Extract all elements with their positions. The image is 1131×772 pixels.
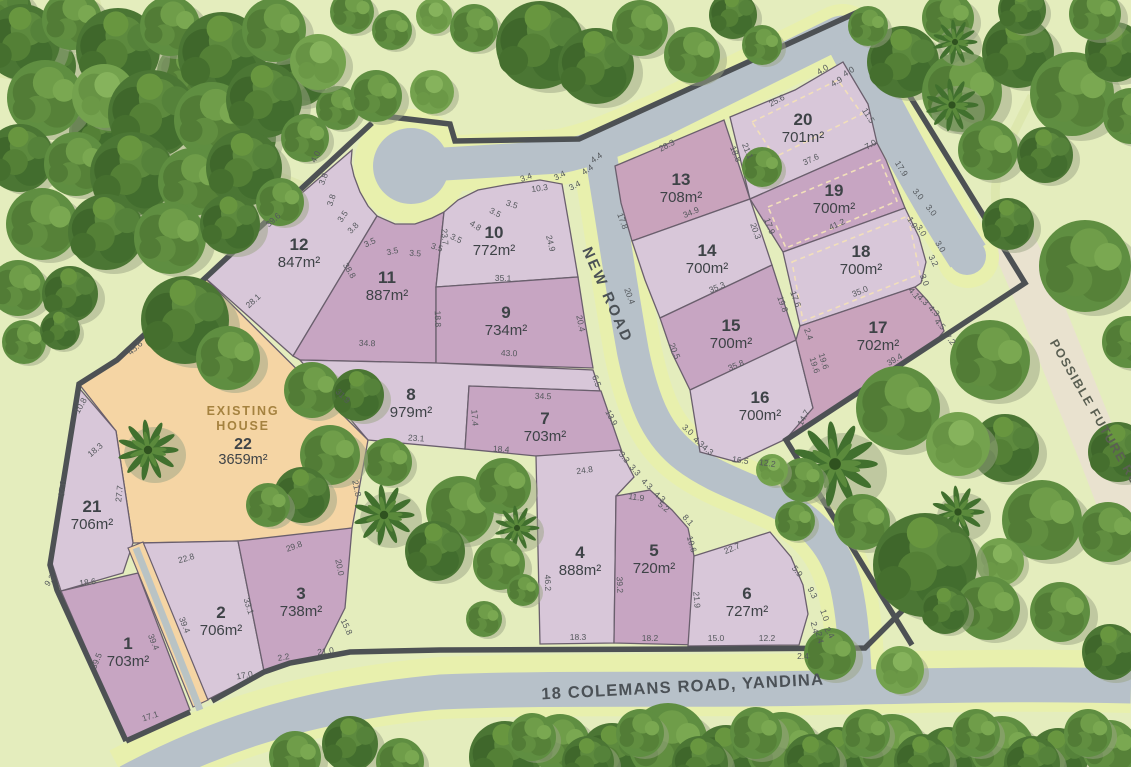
svg-text:2.2: 2.2 xyxy=(277,651,291,663)
svg-text:EXISTING: EXISTING xyxy=(207,404,280,418)
svg-text:738m²: 738m² xyxy=(280,603,323,620)
svg-text:17: 17 xyxy=(869,318,888,337)
svg-text:887m²: 887m² xyxy=(366,287,409,304)
svg-text:18.3: 18.3 xyxy=(570,632,587,642)
svg-text:8: 8 xyxy=(406,385,415,404)
svg-text:3659m²: 3659m² xyxy=(218,452,267,468)
svg-text:702m²: 702m² xyxy=(857,337,900,354)
svg-text:720m²: 720m² xyxy=(633,560,676,577)
svg-text:15.0: 15.0 xyxy=(708,633,725,643)
svg-text:19: 19 xyxy=(825,181,844,200)
svg-text:3.5: 3.5 xyxy=(409,248,422,259)
svg-text:703m²: 703m² xyxy=(107,653,150,670)
svg-text:708m²: 708m² xyxy=(660,189,703,206)
svg-text:10: 10 xyxy=(485,223,504,242)
svg-text:27.7: 27.7 xyxy=(113,485,125,503)
svg-text:18.4: 18.4 xyxy=(493,443,510,454)
svg-text:734m²: 734m² xyxy=(485,322,528,339)
svg-text:6: 6 xyxy=(742,584,751,603)
svg-text:847m²: 847m² xyxy=(278,254,321,271)
svg-text:HOUSE: HOUSE xyxy=(216,419,269,433)
svg-text:7: 7 xyxy=(540,409,549,428)
svg-text:13: 13 xyxy=(672,170,691,189)
svg-text:39.2: 39.2 xyxy=(615,576,626,593)
svg-text:15: 15 xyxy=(722,316,741,335)
svg-text:18: 18 xyxy=(852,242,871,261)
svg-text:706m²: 706m² xyxy=(200,622,243,639)
svg-text:12: 12 xyxy=(290,235,309,254)
svg-text:11: 11 xyxy=(378,268,396,287)
svg-text:4: 4 xyxy=(575,543,585,562)
svg-text:5: 5 xyxy=(649,541,658,560)
svg-text:34.8: 34.8 xyxy=(359,338,376,349)
svg-text:703m²: 703m² xyxy=(524,428,567,445)
svg-text:34.5: 34.5 xyxy=(535,391,552,402)
svg-text:979m²: 979m² xyxy=(390,404,433,421)
svg-text:9: 9 xyxy=(501,303,510,322)
svg-text:700m²: 700m² xyxy=(739,407,782,424)
svg-text:700m²: 700m² xyxy=(686,260,729,277)
svg-text:700m²: 700m² xyxy=(813,200,856,217)
svg-text:706m²: 706m² xyxy=(71,516,114,533)
svg-text:16: 16 xyxy=(751,388,770,407)
svg-text:21: 21 xyxy=(83,497,102,516)
svg-text:23.1: 23.1 xyxy=(408,432,425,443)
svg-text:14: 14 xyxy=(698,241,717,260)
svg-text:2.4: 2.4 xyxy=(797,651,809,661)
svg-text:701m²: 701m² xyxy=(782,129,825,146)
svg-text:727m²: 727m² xyxy=(726,603,769,620)
svg-text:22: 22 xyxy=(234,436,252,453)
svg-text:46.2: 46.2 xyxy=(543,574,554,591)
svg-text:3: 3 xyxy=(296,584,305,603)
svg-text:700m²: 700m² xyxy=(710,335,753,352)
svg-text:888m²: 888m² xyxy=(559,562,602,579)
svg-text:700m²: 700m² xyxy=(840,261,883,278)
svg-text:43.0: 43.0 xyxy=(501,348,518,359)
svg-text:21.9: 21.9 xyxy=(691,591,702,609)
svg-text:35.1: 35.1 xyxy=(495,273,512,284)
svg-text:1: 1 xyxy=(123,634,132,653)
svg-text:17.4: 17.4 xyxy=(469,409,480,426)
svg-text:18.8: 18.8 xyxy=(433,310,444,327)
svg-text:20: 20 xyxy=(794,110,813,129)
svg-text:12.2: 12.2 xyxy=(759,633,776,643)
svg-text:2: 2 xyxy=(216,603,225,622)
svg-text:772m²: 772m² xyxy=(473,242,516,259)
svg-text:18.2: 18.2 xyxy=(642,633,659,643)
